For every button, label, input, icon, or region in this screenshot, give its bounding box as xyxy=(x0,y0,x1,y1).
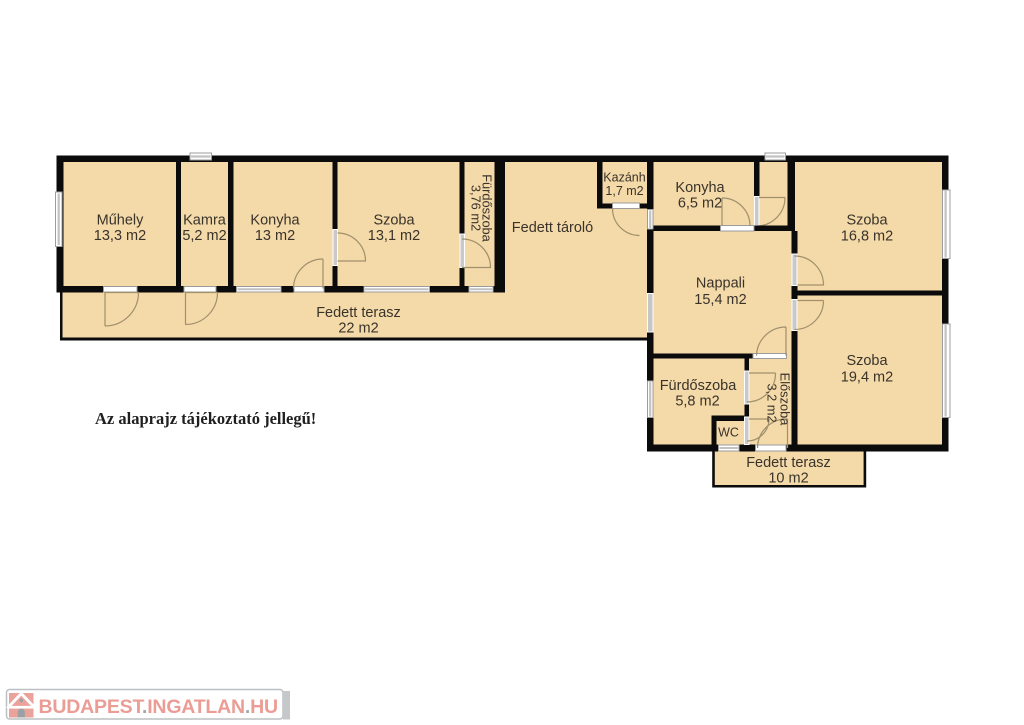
svg-text:Konyha: Konyha xyxy=(675,180,725,196)
svg-text:Fedett tároló: Fedett tároló xyxy=(512,220,593,236)
svg-text:3,76 m2: 3,76 m2 xyxy=(469,185,484,231)
svg-text:Fürdőszoba: Fürdőszoba xyxy=(660,378,738,394)
svg-text:Szoba: Szoba xyxy=(846,353,888,369)
svg-text:22 m2: 22 m2 xyxy=(338,321,378,337)
svg-text:Nappali: Nappali xyxy=(696,276,745,292)
svg-text:13,1 m2: 13,1 m2 xyxy=(368,228,420,244)
svg-text:1,7 m2: 1,7 m2 xyxy=(605,184,643,198)
svg-text:16,8 m2: 16,8 m2 xyxy=(841,229,893,245)
svg-text:Műhely: Műhely xyxy=(97,213,144,229)
svg-text:Szoba: Szoba xyxy=(373,213,415,229)
svg-text:15,4 m2: 15,4 m2 xyxy=(694,292,746,308)
svg-text:WC: WC xyxy=(718,426,739,440)
svg-text:13 m2: 13 m2 xyxy=(255,228,295,244)
svg-text:19,4 m2: 19,4 m2 xyxy=(841,370,893,386)
svg-text:Szoba: Szoba xyxy=(846,213,888,229)
svg-text:Az alaprajz tájékoztató jelleg: Az alaprajz tájékoztató jellegű! xyxy=(95,409,316,428)
svg-text:6,5 m2: 6,5 m2 xyxy=(678,196,722,212)
svg-text:BUDAPEST.INGATLAN.HU: BUDAPEST.INGATLAN.HU xyxy=(39,696,278,718)
svg-text:Kamra: Kamra xyxy=(183,213,227,229)
svg-text:5,8 m2: 5,8 m2 xyxy=(675,394,719,410)
svg-text:Fedett terasz: Fedett terasz xyxy=(746,455,831,471)
svg-text:Fedett terasz: Fedett terasz xyxy=(316,305,401,321)
svg-text:5,2 m2: 5,2 m2 xyxy=(182,228,226,244)
svg-text:Konyha: Konyha xyxy=(250,213,300,229)
svg-text:13,3 m2: 13,3 m2 xyxy=(94,228,146,244)
svg-text:3,2 m2: 3,2 m2 xyxy=(765,383,780,422)
svg-text:Kazánh: Kazánh xyxy=(603,171,645,185)
svg-text:10 m2: 10 m2 xyxy=(768,471,808,487)
